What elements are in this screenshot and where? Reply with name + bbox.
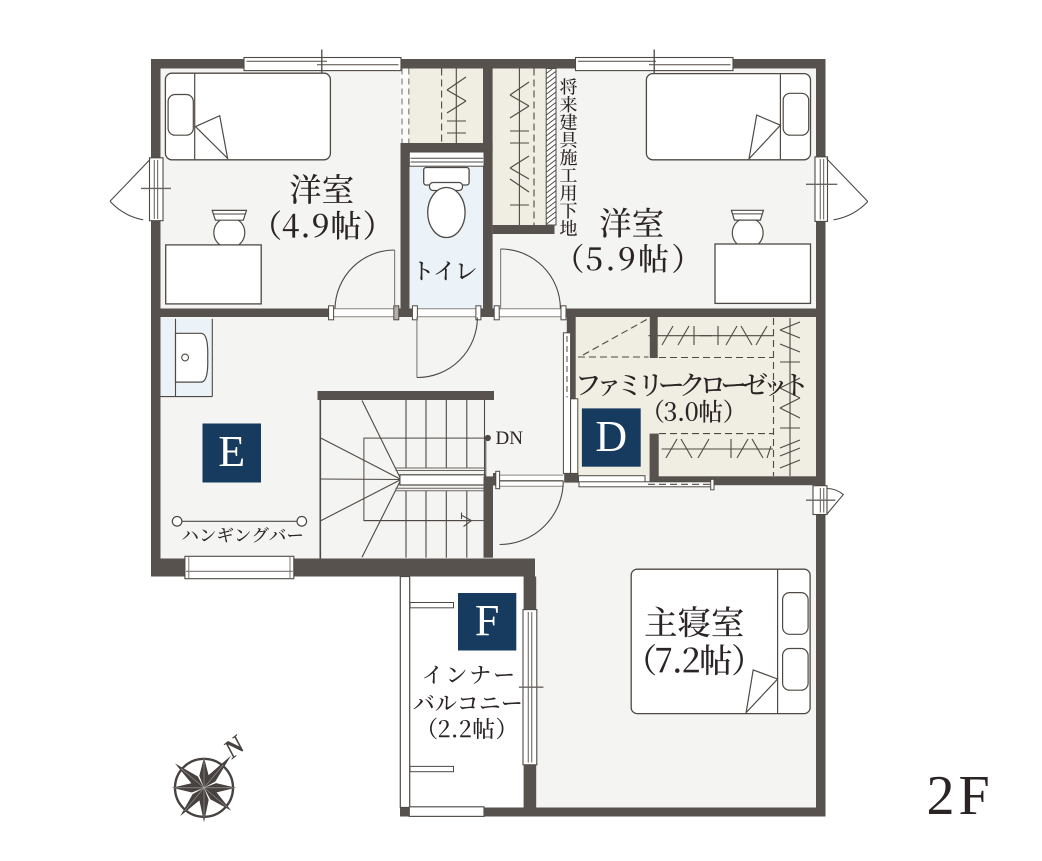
svg-text:D: D <box>595 412 627 461</box>
svg-text:DN: DN <box>496 428 524 449</box>
svg-text:2F: 2F <box>927 765 994 827</box>
svg-text:F: F <box>475 596 499 645</box>
svg-text:E: E <box>218 427 245 476</box>
